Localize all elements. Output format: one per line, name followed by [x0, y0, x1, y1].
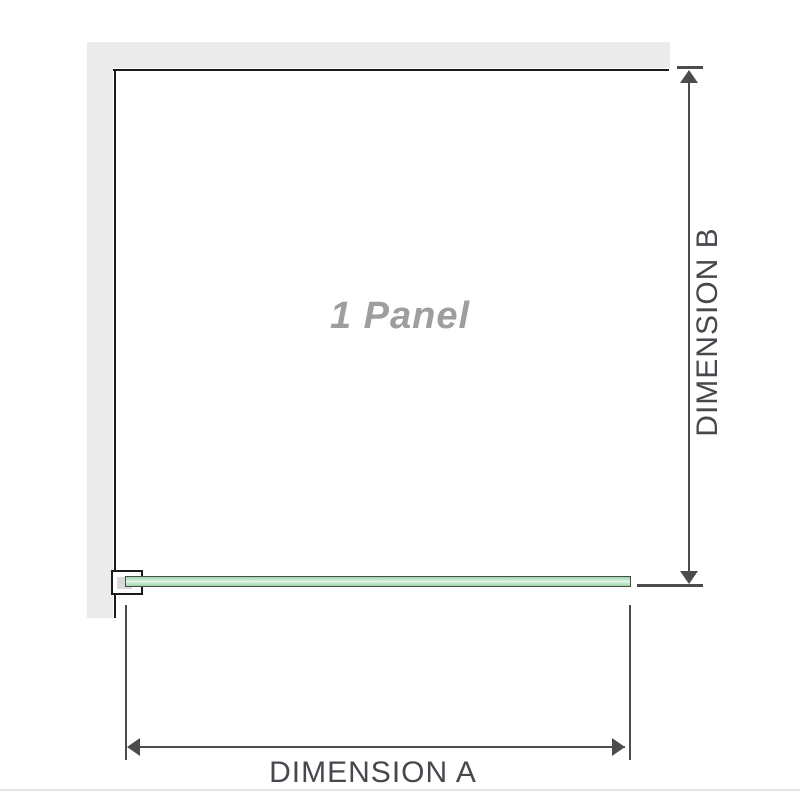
shower-panel-diagram: 1 Panel DIMENSION B DIMENSION A — [0, 0, 800, 800]
arrow-down-icon — [680, 571, 698, 584]
wall-left — [87, 42, 113, 618]
dim-a-left-extension — [125, 605, 127, 760]
dim-a-right-extension — [629, 605, 631, 760]
dim-a-line — [131, 746, 625, 748]
dim-b-top-tick — [677, 66, 703, 69]
dim-b-bottom-tick — [637, 584, 703, 587]
arrow-up-icon — [680, 70, 698, 83]
bottom-separator-line — [0, 789, 800, 791]
dimension-a-label: DIMENSION A — [173, 757, 573, 789]
panel-count-label: 1 Panel — [250, 294, 550, 340]
dimension-b-label: DIMENSION B — [693, 182, 723, 482]
wall-top — [87, 42, 670, 68]
dim-b-line — [688, 76, 690, 572]
panel-outline-top — [113, 69, 669, 71]
glass-panel-bar — [125, 576, 631, 587]
arrow-left-icon — [127, 738, 140, 756]
arrow-right-icon — [612, 738, 625, 756]
panel-outline-left — [114, 69, 116, 618]
